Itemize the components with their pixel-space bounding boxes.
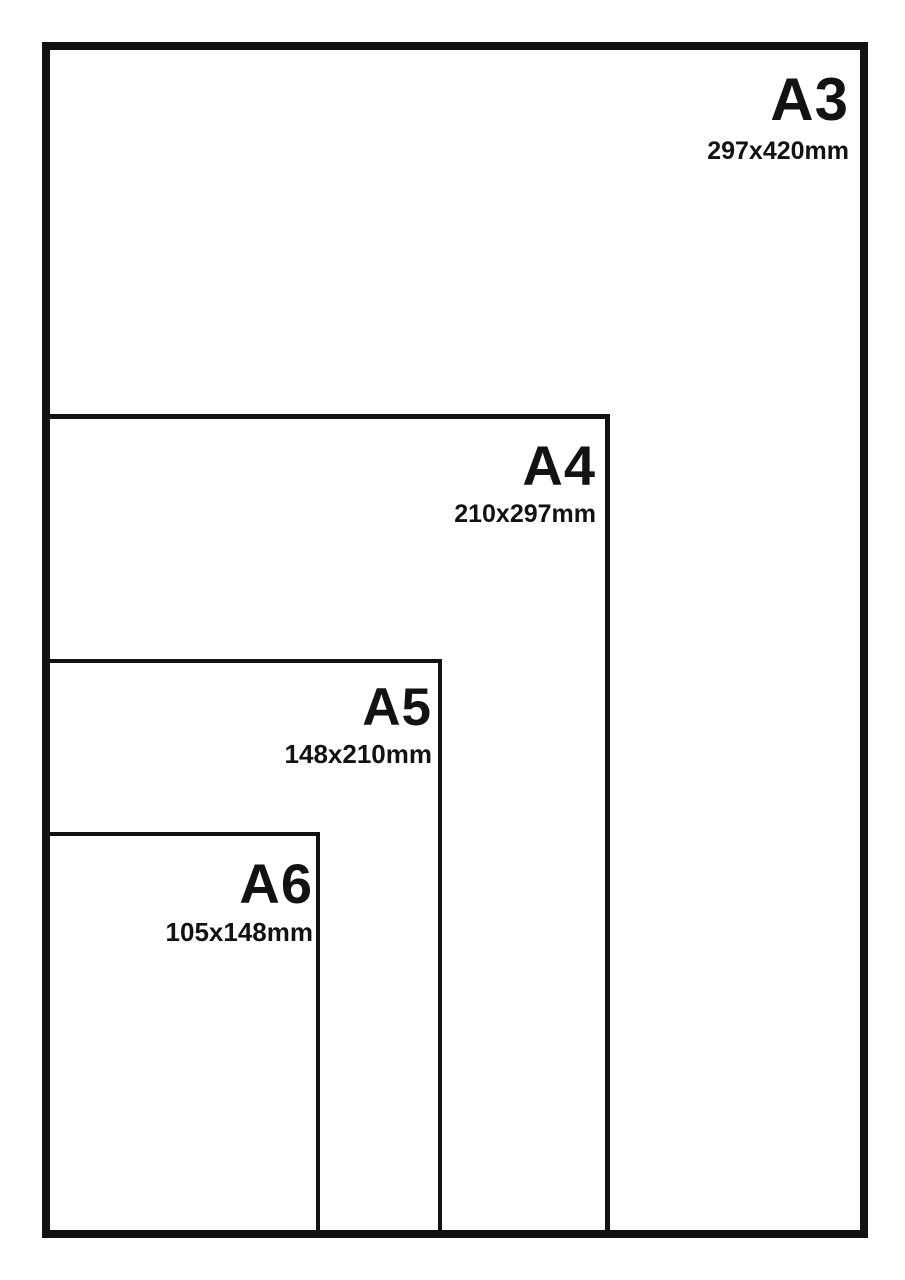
a6-size-name: A6 — [166, 856, 313, 912]
a4-label: A4 210x297mm — [454, 438, 596, 527]
a5-dimensions-text: 148x210mm — [285, 741, 432, 767]
a3-dimensions-text: 297x420mm — [707, 139, 849, 164]
a5-size-name: A5 — [285, 681, 432, 734]
a3-size-name: A3 — [707, 70, 849, 130]
a4-size-name: A4 — [454, 438, 596, 494]
a3-label: A3 297x420mm — [707, 70, 849, 164]
a5-label: A5 148x210mm — [285, 681, 432, 767]
a4-dimensions-text: 210x297mm — [454, 502, 596, 527]
paper-sizes-diagram: A3 297x420mm A4 210x297mm A5 148x210mm A… — [0, 0, 905, 1280]
a6-label: A6 105x148mm — [166, 856, 313, 945]
a6-dimensions-text: 105x148mm — [166, 919, 313, 945]
